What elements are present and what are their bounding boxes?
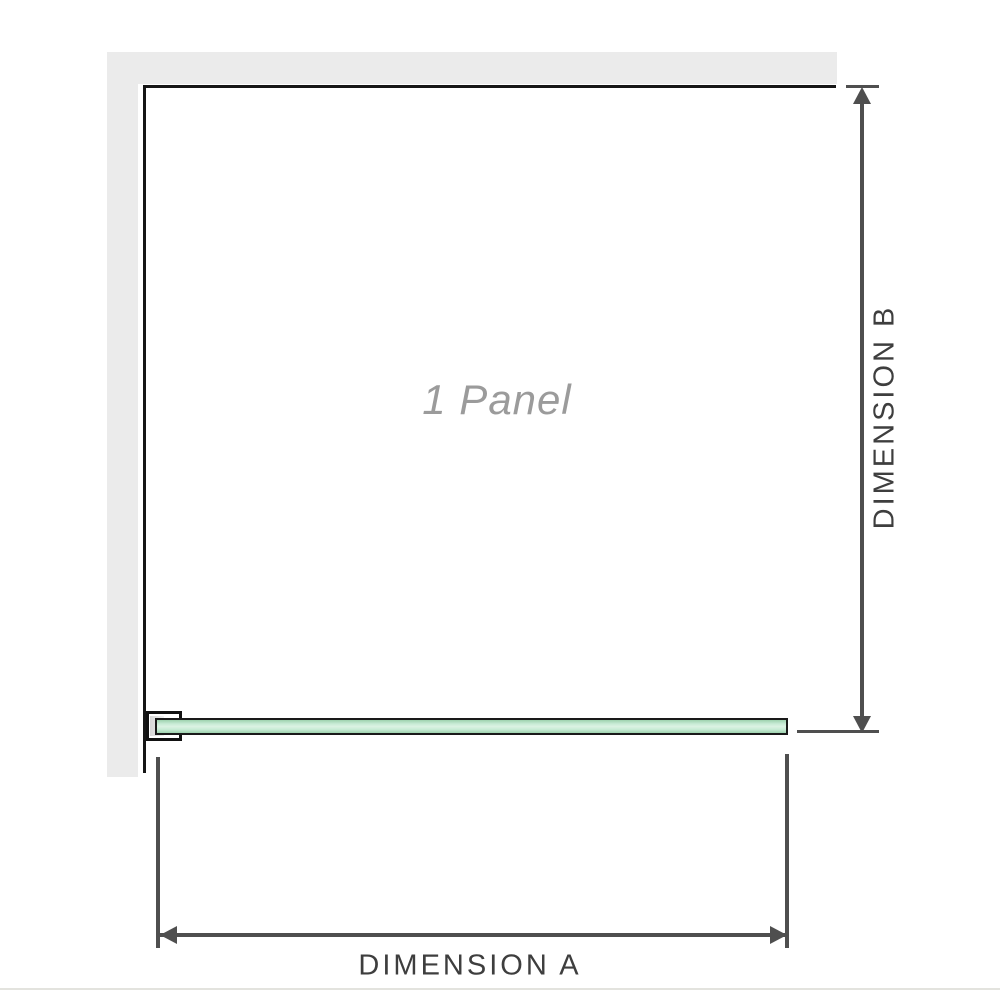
- arrow-up-icon: [853, 87, 871, 104]
- shower-panel-diagram: 1 Panel DIMENSION B DIMENSION A: [0, 0, 1000, 1000]
- wall-back: [107, 52, 837, 84]
- panel-count-label: 1 Panel: [422, 376, 571, 424]
- enclosure-outline-top: [143, 85, 836, 88]
- arrow-right-icon: [770, 926, 787, 944]
- dimension-a-extension-right: [785, 754, 789, 948]
- arrow-left-icon: [160, 926, 177, 944]
- arrow-down-icon: [853, 716, 871, 733]
- glass-panel: [155, 718, 788, 735]
- wall-side: [107, 52, 138, 777]
- dimension-b-label: DIMENSION B: [869, 305, 902, 530]
- enclosure-outline-left: [143, 85, 146, 773]
- dimension-a-extension-left: [156, 757, 160, 948]
- bottom-divider: [0, 988, 1000, 990]
- dimension-a-line: [160, 933, 787, 937]
- dimension-b-line: [860, 95, 864, 725]
- dimension-a-label: DIMENSION A: [358, 950, 581, 983]
